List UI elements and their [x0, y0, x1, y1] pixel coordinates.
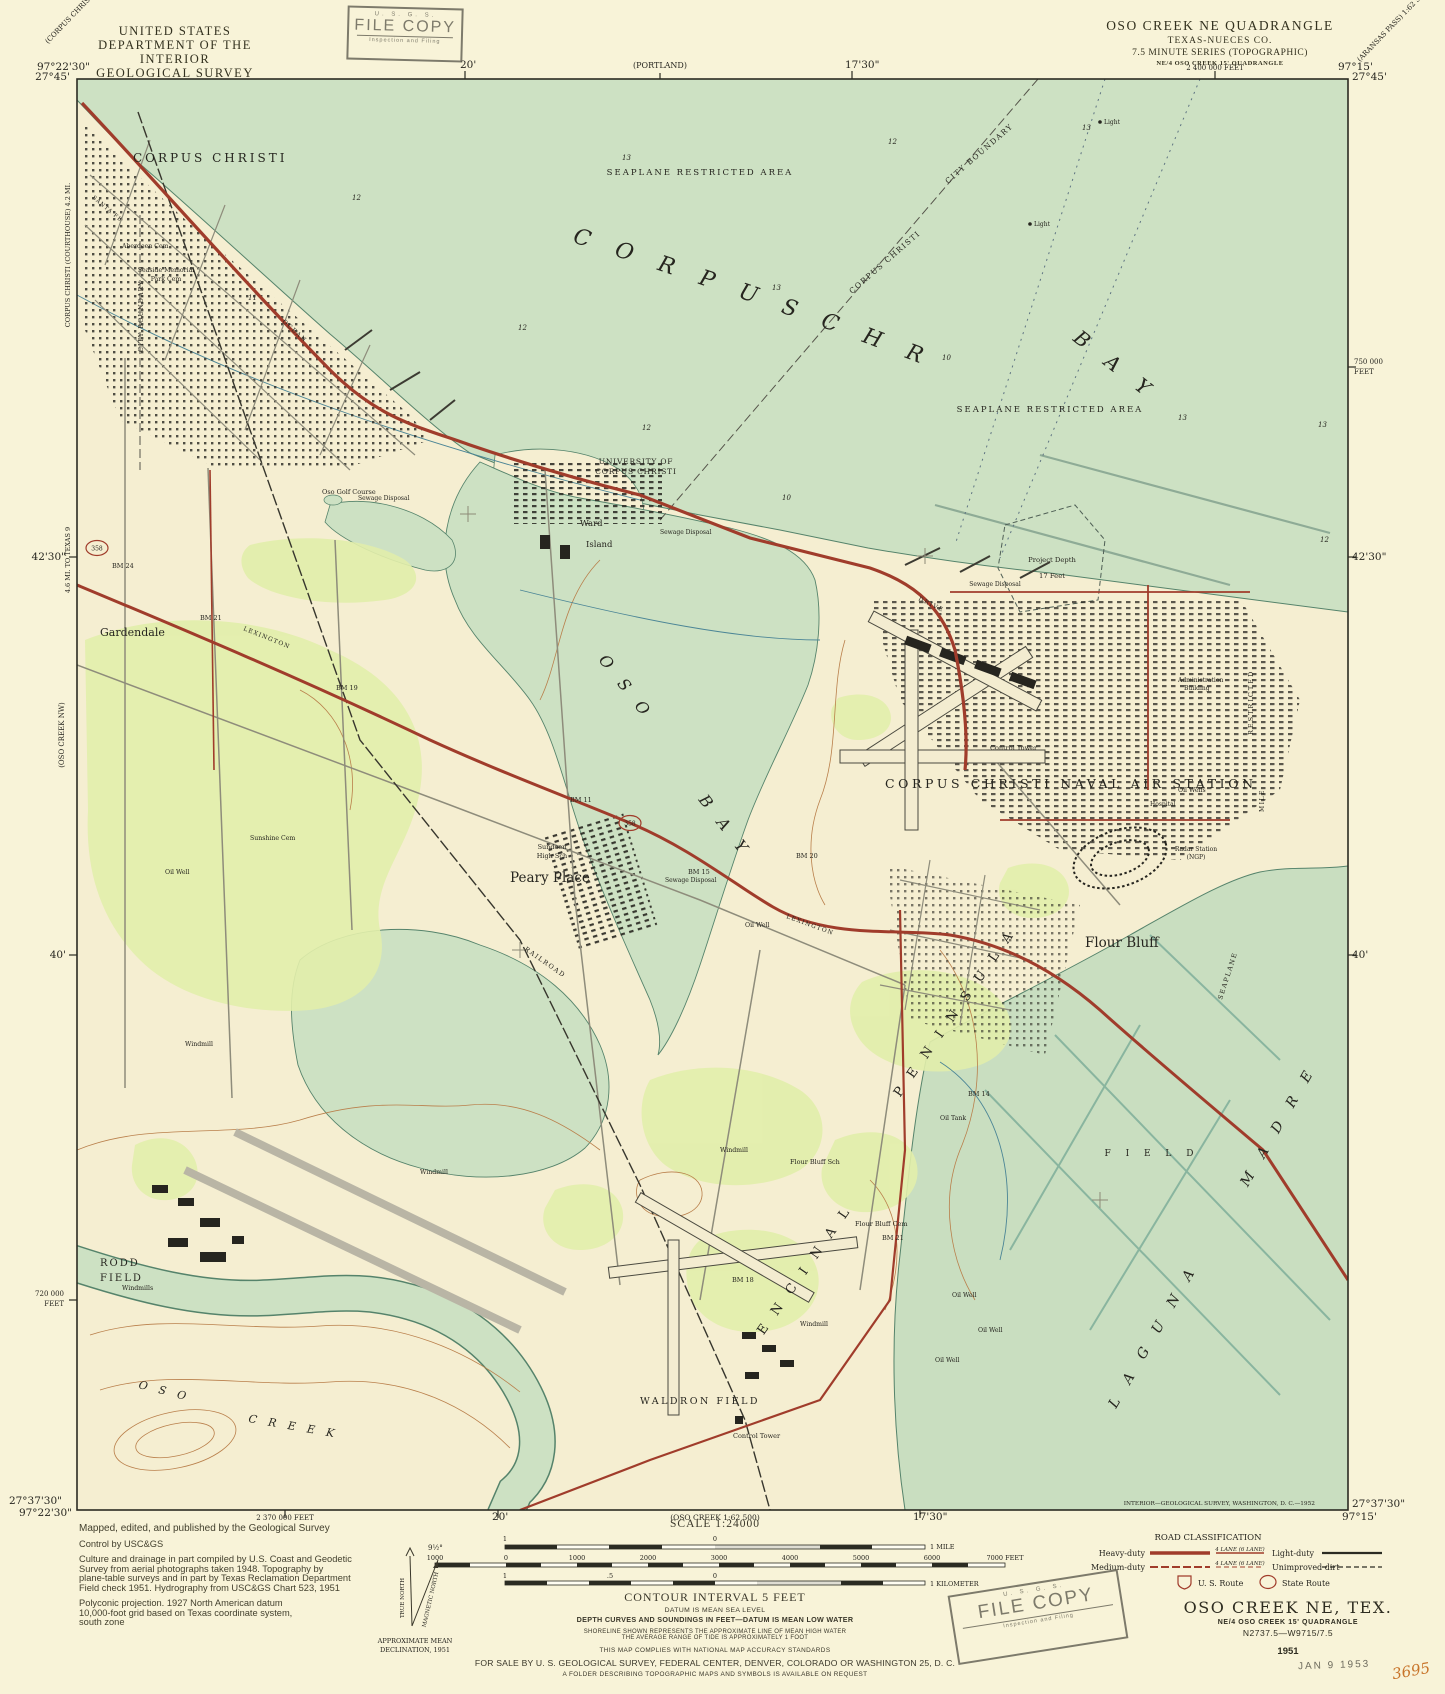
svg-text:1: 1 — [503, 1535, 507, 1543]
svg-text:13: 13 — [772, 284, 781, 292]
label-oil-well-2: Oil Well — [745, 922, 769, 929]
credit-3d: Field check 1951. Hydrography from USC&G… — [79, 1583, 340, 1593]
road-heavy-label: Heavy-duty — [1099, 1549, 1146, 1558]
label-sunshine-cem: Sunshine Cem — [250, 835, 295, 842]
state-route-circle-icon — [1260, 1576, 1276, 1589]
collar-top-1730: 17'30" — [845, 59, 879, 71]
credit-3c: plane-table surveys and in part by Texas… — [79, 1573, 351, 1583]
svg-text:1000: 1000 — [569, 1554, 586, 1562]
label-project-depth-2: 17 Feet — [1039, 572, 1065, 580]
collar-bottom-right-lon: 97°15' — [1342, 1511, 1377, 1523]
svg-text:12: 12 — [1320, 536, 1329, 544]
collar-right-40: 40' — [1352, 949, 1368, 961]
shield-358-icon: 358 — [91, 546, 103, 553]
label-bm15: BM 15 — [688, 868, 710, 876]
map-canvas: 358 358 CORPUS CHRISTI SEAPLANE RESTRICT… — [0, 0, 1445, 1694]
label-oil-well-5: Oil Well — [935, 1357, 959, 1364]
accuracy-note: THIS MAP COMPLIES WITH NATIONAL MAP ACCU… — [430, 1647, 1000, 1654]
label-fb-cem: Flour Bluff Cem — [855, 1220, 908, 1228]
road-unimproved-label: Unimproved dirt — [1272, 1563, 1340, 1572]
contour-interval-note: CONTOUR INTERVAL 5 FEET — [430, 1590, 1000, 1605]
svg-text:1000: 1000 — [427, 1554, 444, 1562]
label-hospital: Hospital — [1150, 801, 1176, 808]
map-notes: CONTOUR INTERVAL 5 FEET DATUM IS MEAN SE… — [430, 1590, 1000, 1678]
quad-header: OSO CREEK NE QUADRANGLE TEXAS-NUECES CO.… — [1080, 18, 1360, 67]
label-admin-1: Administration — [1177, 677, 1223, 684]
svg-text:3000: 3000 — [711, 1554, 728, 1562]
label-seaplane-restricted-1: SEAPLANE RESTRICTED AREA — [607, 168, 794, 178]
scale-bar-labels: 1 0 1 MILE 1000 0 1000 2000 3000 4000 50… — [427, 1535, 1024, 1588]
quad-series: 7.5 MINUTE SERIES (TOPOGRAPHIC) — [1080, 48, 1360, 58]
label-bm21b: BM 21 — [882, 1234, 904, 1242]
credit-4c: south zone — [79, 1617, 125, 1627]
label-bm11: BM 11 — [570, 796, 592, 804]
label-bm19: BM 19 — [336, 684, 358, 692]
label-windmills: Windmills — [122, 1285, 153, 1292]
label-peary-place: Peary Place — [510, 870, 590, 886]
file-copy-stamp-top: U. S. G. S. FILE COPY Inspection and Fil… — [346, 5, 463, 62]
label-city-boundary-west: CITY BOUNDARY — [137, 280, 145, 352]
depth-note: DEPTH CURVES AND SOUNDINGS IN FEET—DATUM… — [430, 1615, 1000, 1624]
label-oil-well-3: Oil Well — [952, 1292, 976, 1299]
label-sundeen-1: Sundeen — [538, 843, 567, 851]
declination-angle: 9½° — [428, 1544, 443, 1552]
sheet-title: OSO CREEK NE, TEX. — [1128, 1598, 1445, 1617]
label-windmill-1: Windmill — [185, 1041, 213, 1048]
label-bm21a: BM 21 — [200, 614, 222, 622]
label-windmill-2: Windmill — [420, 1169, 448, 1176]
svg-text:10: 10 — [782, 494, 791, 502]
svg-text:1 MILE: 1 MILE — [930, 1543, 955, 1551]
label-gardendale: Gardendale — [100, 626, 165, 639]
label-windmill-3: Windmill — [720, 1147, 748, 1154]
credits-block: Mapped, edited, and published by the Geo… — [79, 1524, 409, 1634]
label-control-tower-nas: Control Tower — [990, 744, 1038, 752]
collar-top-20: 20' — [460, 59, 476, 71]
collar-corner-ne: (ARANSAS PASS) 1:62 500 — [1356, 0, 1428, 63]
quad-title: OSO CREEK NE QUADRANGLE — [1080, 18, 1360, 34]
us-route-shield-icon — [1178, 1576, 1191, 1589]
sheet-title-code: N2737.5—W9715/7.5 — [1128, 1628, 1445, 1638]
label-sewage-1: Sewage Disposal — [660, 529, 712, 536]
quad-state: TEXAS-NUECES CO. — [1080, 36, 1360, 46]
label-seaside-1: Seaside Memorial — [138, 267, 195, 274]
label-sundeen-2: High Sch — [537, 852, 567, 860]
collar-bottom-feet: 2 370 000 FEET — [256, 1514, 314, 1522]
label-island: Island — [586, 540, 613, 550]
collar-left-feet-2: FEET — [44, 1300, 64, 1308]
road-light-label: Light-duty — [1272, 1549, 1315, 1558]
label-mile: MILE — [1259, 789, 1266, 812]
road-medium-label: Medium-duty — [1091, 1563, 1146, 1572]
agency-line-3: GEOLOGICAL SURVEY — [70, 66, 280, 80]
collar-right-feet-1: 750 000 — [1354, 358, 1383, 366]
agency-line-1: UNITED STATES — [70, 24, 280, 38]
svg-text:12: 12 — [888, 138, 897, 146]
svg-text:1 KILOMETER: 1 KILOMETER — [930, 1580, 980, 1588]
label-bm14: BM 14 — [968, 1090, 990, 1098]
label-ward: Ward — [580, 519, 603, 529]
credit-line-2: Control by USC&GS — [79, 1540, 409, 1550]
svg-text:10: 10 — [942, 354, 951, 362]
label-oil-tank: Oil Tank — [940, 1115, 966, 1122]
agency-header: UNITED STATES DEPARTMENT OF THE INTERIOR… — [70, 24, 280, 80]
label-waldron-field: WALDRON FIELD — [640, 1396, 760, 1407]
credit-line-1: Mapped, edited, and published by the Geo… — [79, 1524, 409, 1534]
svg-text:2000: 2000 — [640, 1554, 657, 1562]
label-admin-2: Building — [1184, 685, 1210, 692]
label-bm18: BM 18 — [732, 1276, 754, 1284]
svg-text:0: 0 — [713, 1572, 717, 1580]
svg-text:0: 0 — [713, 1535, 717, 1543]
collar-left-40: 40' — [50, 949, 66, 961]
label-light-2: Light — [1034, 221, 1051, 228]
svg-text:12: 12 — [352, 194, 361, 202]
svg-text:13: 13 — [1318, 421, 1327, 429]
datum-note: DATUM IS MEAN SEA LEVEL — [430, 1607, 1000, 1614]
svg-text:11: 11 — [248, 294, 257, 302]
label-oil-wells: Oil Wells — [1178, 787, 1206, 794]
road-class-title: ROAD CLASSIFICATION — [1154, 1533, 1262, 1543]
label-light-1: Light — [1104, 119, 1121, 126]
collar-bottom-right-lat: 27°37'30" — [1352, 1498, 1405, 1510]
us-route-label: U. S. Route — [1198, 1579, 1244, 1588]
collar-adjoining-west: (OSO CREEK NW) — [58, 702, 66, 768]
credit-4b: 10,000-foot grid based on Texas coordina… — [79, 1608, 292, 1618]
collar-left-feet-1: 720 000 — [35, 1290, 64, 1298]
agency-line-2: DEPARTMENT OF THE INTERIOR — [70, 38, 280, 66]
svg-text:13: 13 — [622, 154, 631, 162]
scanned-topo-sheet: { "header": { "agency_line1": "UNITED ST… — [0, 0, 1445, 1694]
sheet-title-sub: NE/4 OSO CREEK 15' QUADRANGLE — [1128, 1619, 1445, 1626]
collar-note-texas: 4.6 MI. TO TEXAS 9 — [64, 527, 72, 593]
map-body: 358 358 CORPUS CHRISTI SEAPLANE RESTRICT… — [0, 0, 1348, 1515]
shield-358-icon: 358 — [624, 821, 636, 828]
label-rodd-2: FIELD — [100, 1273, 143, 1284]
projection-paragraph: Polyconic projection. 1927 North America… — [79, 1599, 409, 1628]
label-sewage-4: Sewage Disposal — [665, 877, 717, 884]
collar-bottom-left-lon: 97°22'30" — [19, 1507, 72, 1519]
collar-portland: (PORTLAND) — [633, 61, 687, 70]
state-route-label: State Route — [1282, 1579, 1330, 1588]
label-sewage-2: Sewage Disposal — [358, 495, 410, 502]
svg-text:7000 FEET: 7000 FEET — [987, 1554, 1025, 1562]
label-flour-bluff: Flour Bluff — [1085, 935, 1160, 951]
label-field: F I E L D — [1104, 1149, 1199, 1159]
collar-left-4230: 42'30" — [32, 551, 66, 563]
stamp-sub: Inspection and Filing — [357, 35, 453, 46]
label-bm24: BM 24 — [112, 562, 134, 570]
collar-imprint: INTERIOR—GEOLOGICAL SURVEY, WASHINGTON, … — [1124, 1501, 1316, 1507]
label-oil-well-1: Oil Well — [165, 869, 189, 876]
label-radar-1: Radar Station — [1175, 846, 1217, 853]
credit-3b: Survey from aerial photographs taken 194… — [79, 1564, 323, 1574]
svg-text:0: 0 — [504, 1554, 508, 1562]
svg-text:13: 13 — [1178, 414, 1187, 422]
label-bm20: BM 20 — [796, 852, 818, 860]
scale-title: SCALE 1:24000 — [430, 1518, 1000, 1530]
svg-text:12: 12 — [642, 424, 651, 432]
svg-text:12: 12 — [518, 324, 527, 332]
collar-right-feet-2: FEET — [1354, 368, 1374, 376]
stamp-file-copy: FILE COPY — [349, 17, 461, 37]
quad-sub: NE/4 OSO CREEK 15' QUADRANGLE — [1080, 60, 1360, 67]
svg-text:.5: .5 — [607, 1572, 613, 1580]
label-sewage-3: Sewage Disposal — [969, 581, 1021, 588]
lane-note-2: 4 LANE (6 LANE) — [1214, 1560, 1264, 1567]
sheet-title-block: OSO CREEK NE, TEX. NE/4 OSO CREEK 15' QU… — [1128, 1598, 1445, 1657]
label-oso-golf: Oso Golf Course — [322, 488, 376, 496]
credit-3a: Culture and drainage in part compiled by… — [79, 1554, 352, 1564]
sheet-title-year: 1951 — [1128, 1646, 1445, 1657]
label-windmill-4: Windmill — [800, 1321, 828, 1328]
road-classification: ROAD CLASSIFICATION Heavy-duty 4 LANE (6… — [1091, 1533, 1382, 1589]
label-seaplane-restricted-2: SEAPLANE RESTRICTED AREA — [957, 405, 1144, 415]
collar-bottom-left-lat: 27°37'30" — [9, 1495, 62, 1507]
svg-text:5000: 5000 — [853, 1554, 870, 1562]
svg-text:1: 1 — [503, 1572, 507, 1580]
label-aberdeen-cem: Aberdeen Cem — [121, 243, 169, 250]
credit-paragraph: Culture and drainage in part compiled by… — [79, 1555, 409, 1593]
svg-text:13: 13 — [1082, 124, 1091, 132]
folder-note: A FOLDER DESCRIBING TOPOGRAPHIC MAPS AND… — [430, 1671, 1000, 1678]
label-restricted: RESTRICTED — [1247, 670, 1255, 735]
shoreline-note-2: THE AVERAGE RANGE OF TIDE IS APPROXIMATE… — [430, 1635, 1000, 1641]
label-corpus-christi-city: CORPUS CHRISTI — [133, 151, 287, 165]
golf-pond — [324, 495, 342, 505]
scale-bars — [435, 1545, 1005, 1585]
label-radar-2: (NGP) — [1187, 854, 1206, 861]
credit-4a: Polyconic projection. 1927 North America… — [79, 1598, 283, 1608]
label-seaside-2: Park Cem — [151, 276, 182, 283]
svg-text:6000: 6000 — [924, 1554, 941, 1562]
label-university-2: CORPUS CHRISTI — [595, 467, 676, 476]
collar-top-right-lat: 27°45' — [1352, 71, 1387, 83]
label-university-1: UNIVERSITY OF — [599, 457, 674, 466]
lane-note-1: 4 LANE (6 LANE) — [1214, 1546, 1264, 1553]
sale-note: FOR SALE BY U. S. GEOLOGICAL SURVEY, FED… — [430, 1658, 1000, 1668]
label-rodd-1: RODD — [100, 1258, 140, 1269]
label-control-tower-waldron: Control Tower — [733, 1432, 781, 1440]
label-oil-well-4: Oil Well — [978, 1327, 1002, 1334]
label-fb-school: Flour Bluff Sch — [790, 1158, 840, 1166]
label-project-depth-1: Project Depth — [1028, 556, 1076, 564]
collar-top-left-lat: 27°45' — [35, 71, 70, 83]
svg-text:4000: 4000 — [782, 1554, 799, 1562]
collar-right-4230: 42'30" — [1352, 551, 1386, 563]
collar-note-courthouse: CORPUS CHRISTI (COURTHOUSE) 4.2 MI. — [64, 183, 72, 327]
